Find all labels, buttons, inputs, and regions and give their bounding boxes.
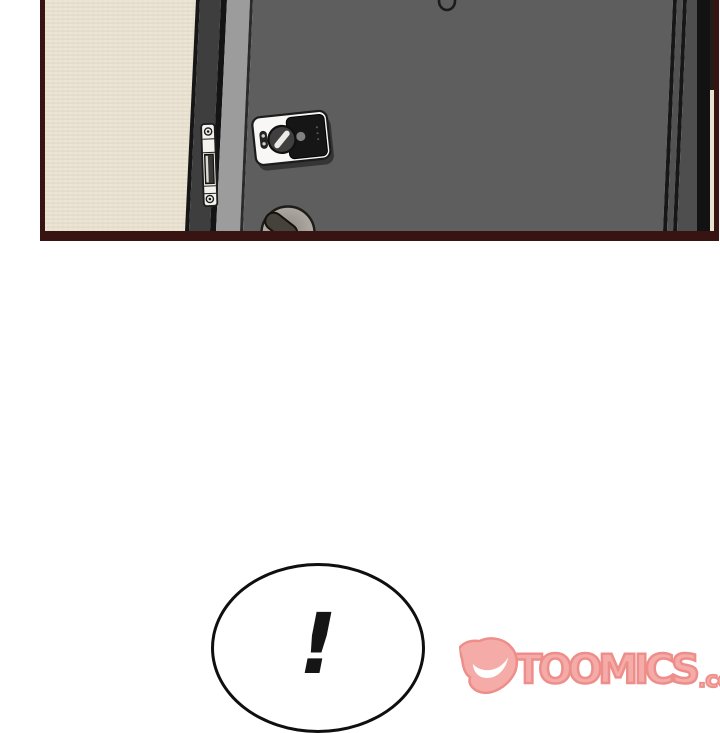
digital-door-lock: [252, 110, 335, 172]
right-wall-sliver: [710, 90, 714, 231]
right-black-band: [697, 0, 710, 231]
comic-panel-door-scene: [0, 0, 720, 241]
toomics-logo-mark-icon: [458, 634, 524, 697]
toomics-logo-suffix: .com: [698, 670, 720, 692]
exclamation-text: !: [214, 602, 422, 686]
right-wall-sliver-shadow: [710, 0, 714, 92]
comic-page: ! TOOMICS .com: [0, 0, 720, 700]
speech-bubble: !: [211, 563, 425, 733]
toomics-logo: TOOMICS .com: [461, 640, 720, 690]
strike-plate: [201, 124, 217, 206]
hallway-wall: [45, 0, 196, 231]
toomics-logo-text: TOOMICS: [515, 650, 696, 690]
